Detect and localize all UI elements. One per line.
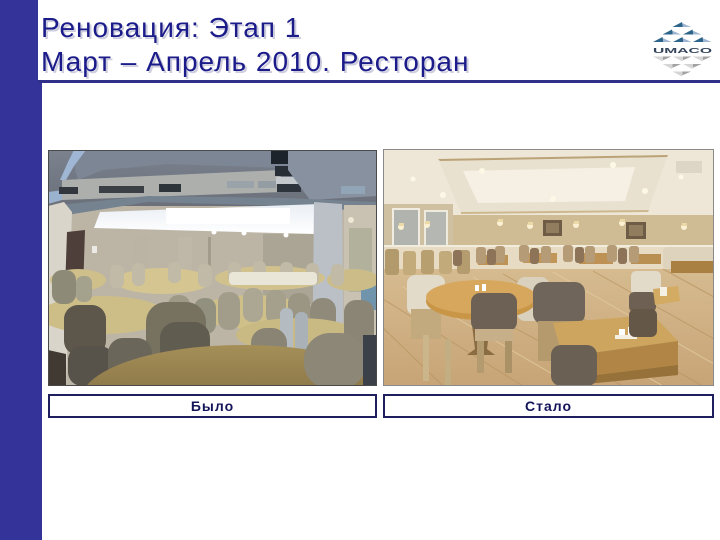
svg-text:UMACO: UMACO [653, 48, 713, 55]
